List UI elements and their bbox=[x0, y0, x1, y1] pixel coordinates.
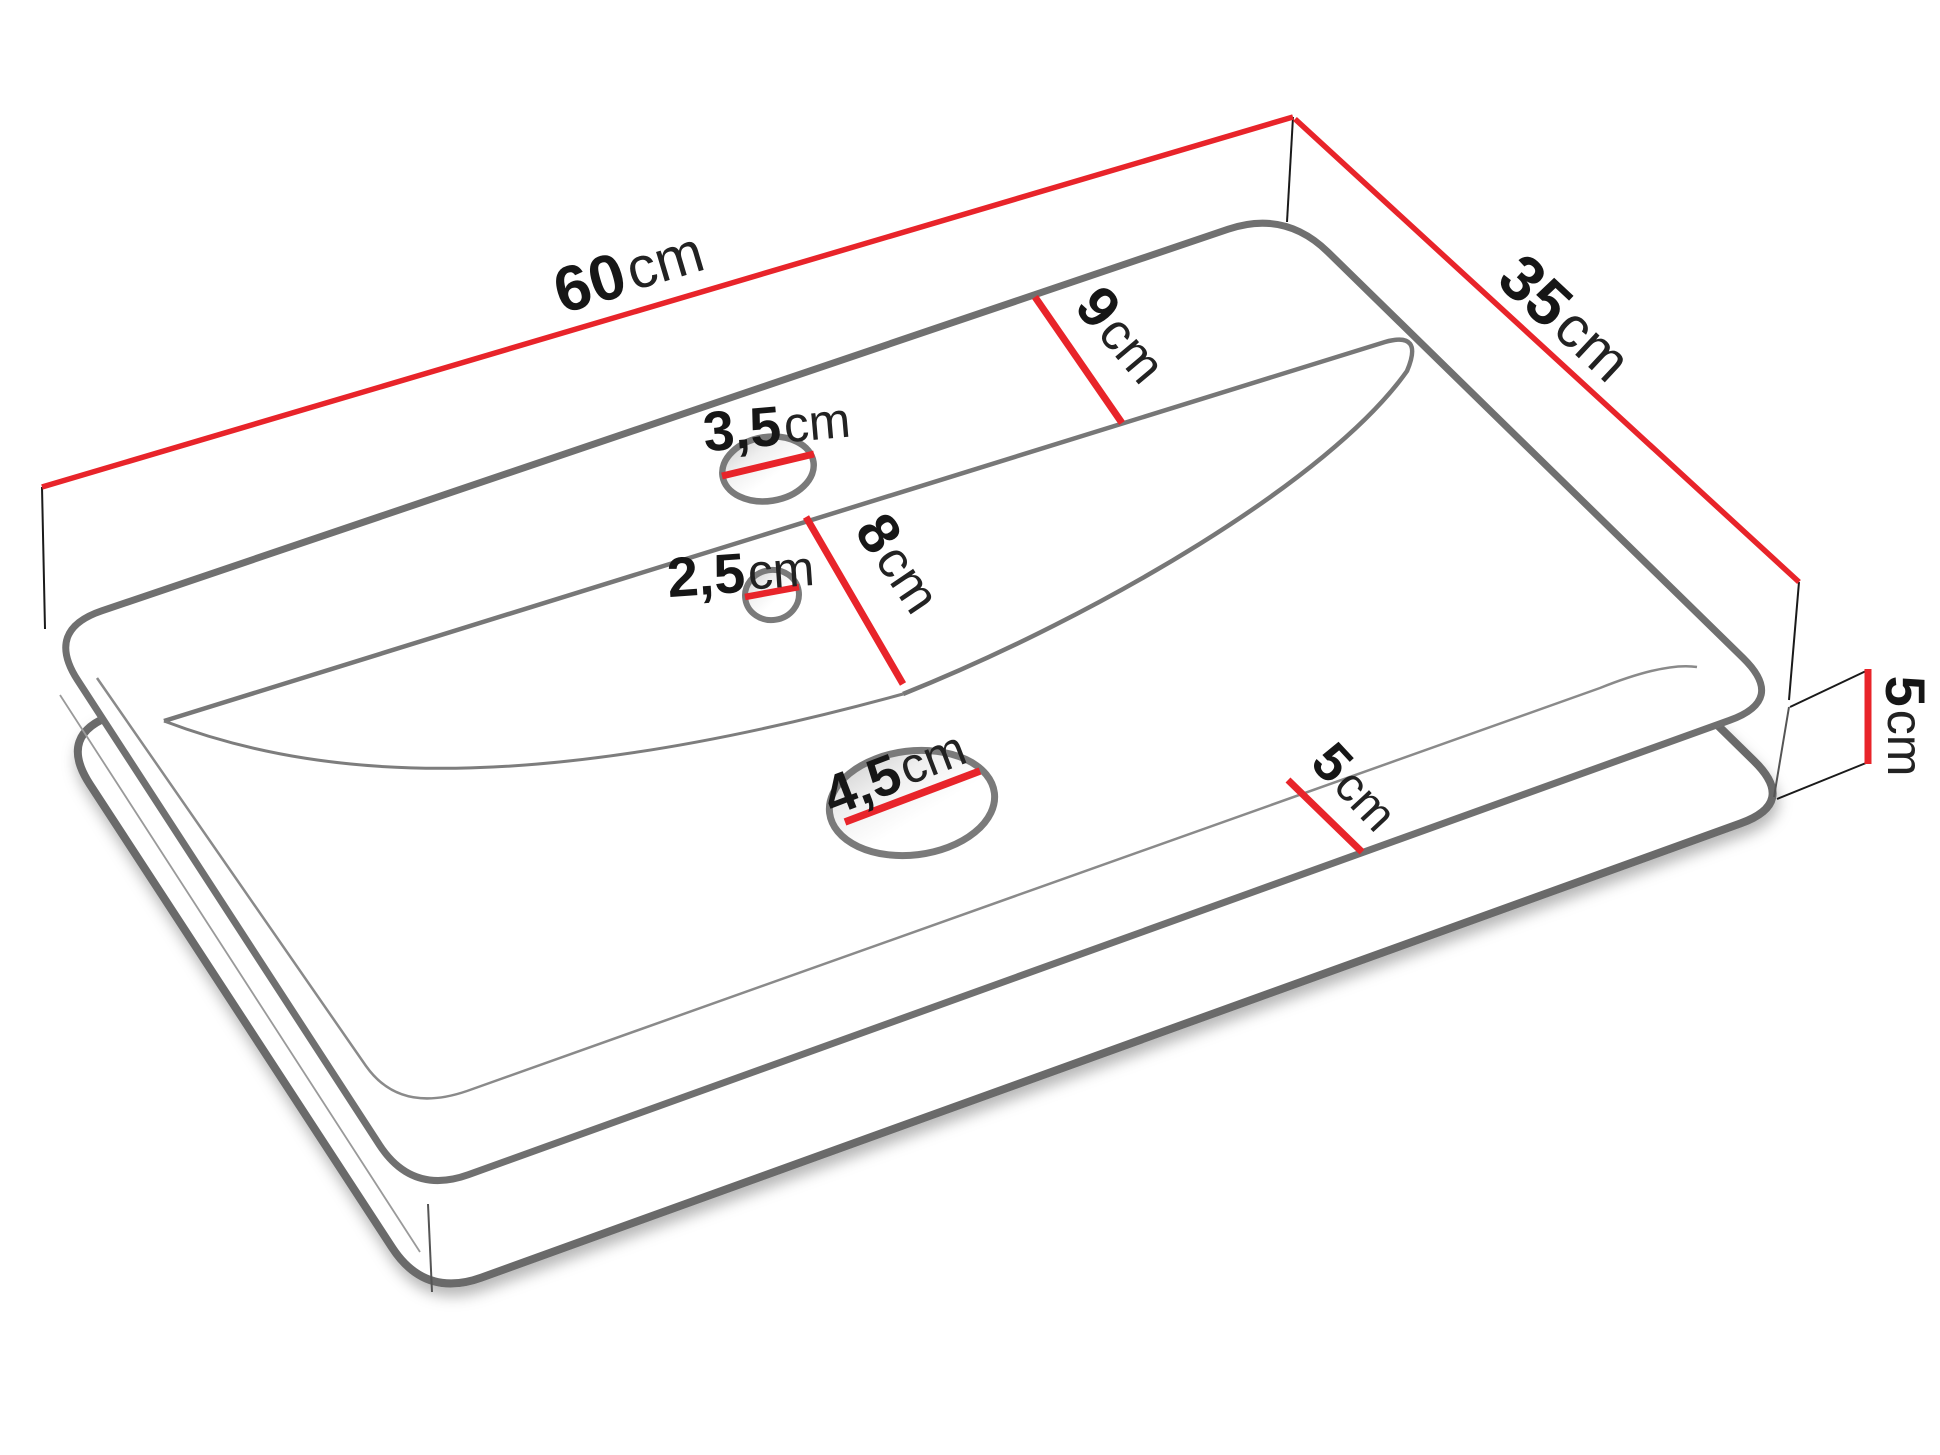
right-corner-edge bbox=[1774, 707, 1789, 797]
extension-line-height-bottom bbox=[1777, 763, 1866, 799]
extension-line-depth-right bbox=[1789, 582, 1799, 700]
extension-line-height-top bbox=[1790, 671, 1866, 707]
diagram-canvas: 60cm 35cm 9cm 8cm 3,5cm 2,5cm 4,5cm 5cm … bbox=[0, 0, 1940, 1455]
extension-line-width-left bbox=[42, 487, 45, 629]
height-dimension-label: 5cm bbox=[1874, 676, 1937, 777]
washbasin-technical-diagram: 60cm 35cm 9cm 8cm 3,5cm 2,5cm 4,5cm 5cm … bbox=[0, 0, 1940, 1455]
width-dimension-label: 60cm bbox=[545, 215, 712, 327]
extension-line-back-corner bbox=[1287, 117, 1293, 222]
